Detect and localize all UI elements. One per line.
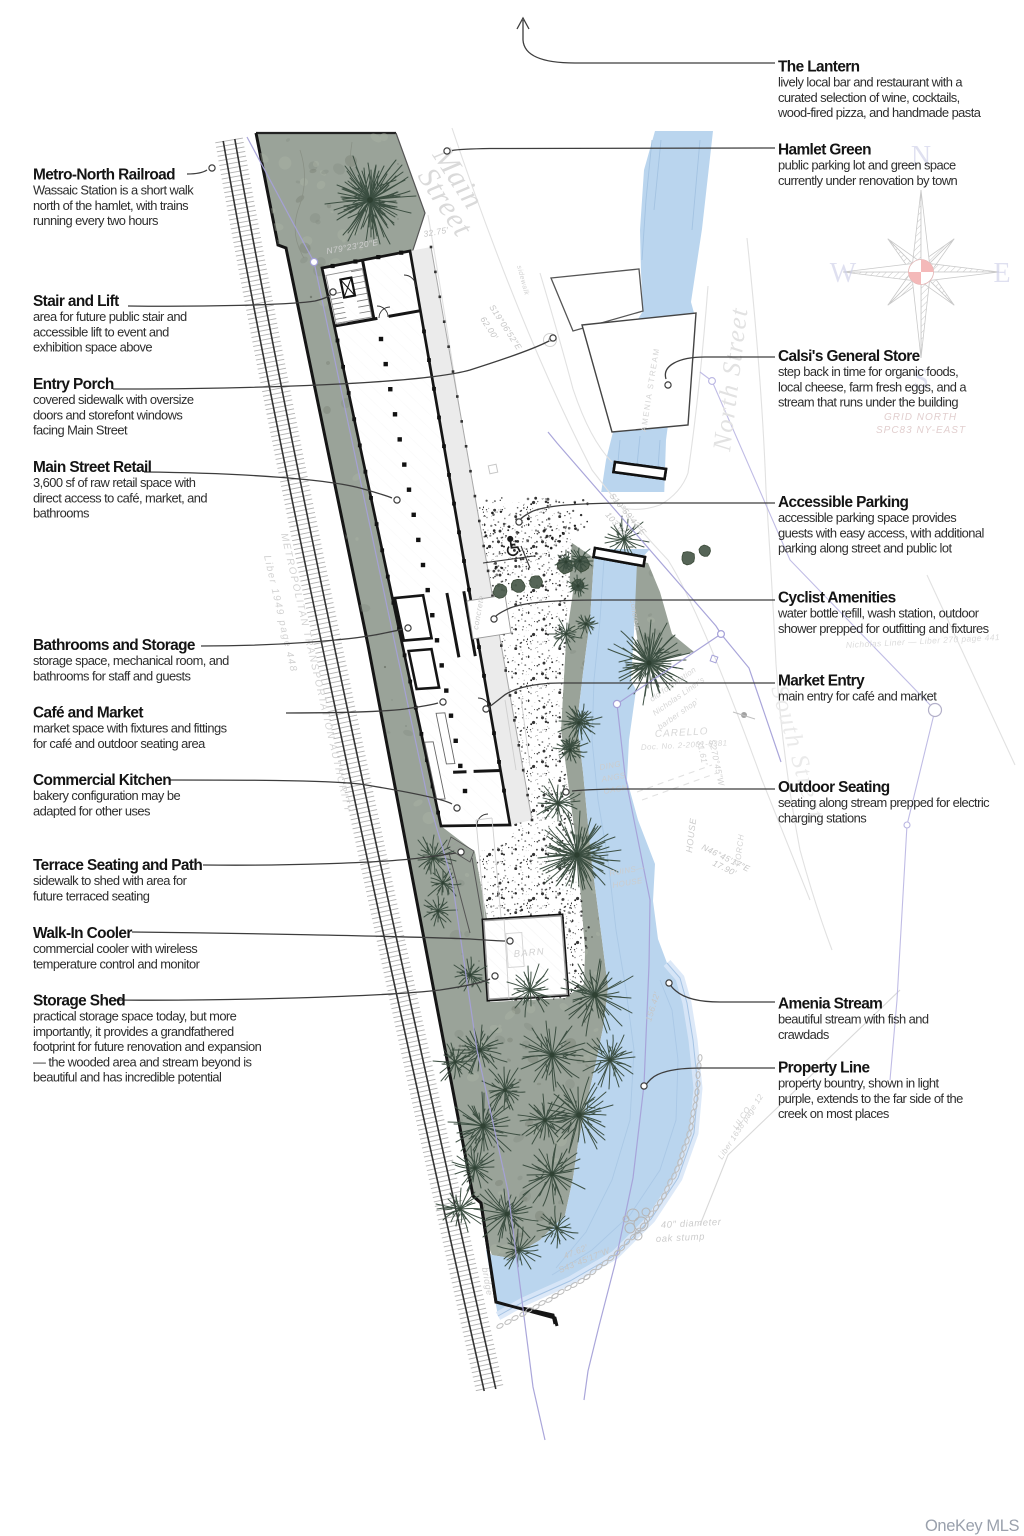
svg-text:north of the hamlet, with trai: north of the hamlet, with trains — [33, 198, 188, 213]
svg-text:Outdoor Seating: Outdoor Seating — [778, 779, 890, 796]
svg-text:covered sidewalk with oversize: covered sidewalk with oversize — [33, 392, 194, 407]
svg-text:GRID NORTH: GRID NORTH — [884, 412, 957, 423]
svg-text:Walk-In Cooler: Walk-In Cooler — [33, 925, 132, 942]
svg-text:Amenia Stream: Amenia Stream — [778, 996, 882, 1013]
svg-text:Wassaic Station is a short wal: Wassaic Station is a short walk — [33, 183, 194, 198]
svg-text:bathrooms: bathrooms — [33, 506, 89, 521]
svg-text:property bountry, shown in lig: property bountry, shown in light — [778, 1076, 940, 1091]
svg-text:Accessible Parking: Accessible Parking — [778, 494, 909, 511]
svg-text:local cheese, farm fresh eggs,: local cheese, farm fresh eggs, and a — [778, 379, 967, 394]
svg-text:curated selection of wine, coc: curated selection of wine, cocktails, — [778, 90, 960, 105]
svg-text:Commercial Kitchen: Commercial Kitchen — [33, 772, 171, 789]
svg-text:footprint for future renovatio: footprint for future renovation and expa… — [33, 1039, 262, 1054]
svg-text:practical storage space today,: practical storage space today, but more — [33, 1009, 237, 1024]
svg-text:currently under renovation by: currently under renovation by town — [778, 173, 957, 188]
svg-text:Calsi's General Store: Calsi's General Store — [778, 348, 921, 365]
svg-text:Bathrooms and Storage: Bathrooms and Storage — [33, 637, 196, 654]
svg-text:creek on most places: creek on most places — [778, 1106, 889, 1121]
svg-text:— the wooded area and stream b: — the wooded area and stream beyond is — [33, 1054, 252, 1069]
svg-text:purple, extends to the far sid: purple, extends to the far side of the — [778, 1091, 963, 1106]
svg-text:parking along street and publi: parking along street and public lot — [778, 541, 952, 556]
svg-text:bakery configuration may be: bakery configuration may be — [33, 788, 180, 803]
svg-text:public parking lot and green s: public parking lot and green space — [778, 158, 956, 173]
svg-text:W: W — [830, 258, 857, 289]
svg-text:Café and Market: Café and Market — [33, 705, 143, 722]
svg-text:Metro-North Railroad: Metro-North Railroad — [33, 167, 175, 184]
svg-text:market space with fixtures and: market space with fixtures and fittings — [33, 721, 227, 736]
svg-text:lively local bar and restauran: lively local bar and restaurant with a — [778, 75, 963, 90]
svg-text:Property Line: Property Line — [778, 1060, 870, 1077]
svg-text:area for future public stair a: area for future public stair and — [33, 309, 187, 324]
svg-text:E: E — [993, 258, 1010, 289]
svg-text:sidewalk to shed with area for: sidewalk to shed with area for — [33, 873, 188, 888]
svg-text:beautiful stream with fish and: beautiful stream with fish and — [778, 1012, 929, 1027]
svg-text:bathrooms for staff and guests: bathrooms for staff and guests — [33, 668, 190, 683]
svg-text:storage space, mechanical room: storage space, mechanical room, and — [33, 653, 229, 668]
svg-text:accessible parking space provi: accessible parking space provides — [778, 510, 956, 525]
svg-text:running every two hours: running every two hours — [33, 213, 158, 228]
svg-text:wood-fired pizza, and handmade: wood-fired pizza, and handmade pasta — [777, 105, 982, 120]
svg-text:crawdads: crawdads — [778, 1027, 829, 1042]
svg-text:shower prepped for outfitting: shower prepped for outfitting and fixtur… — [778, 621, 989, 636]
svg-text:facing Main Street: facing Main Street — [33, 423, 128, 438]
svg-text:step back in time for organic: step back in time for organic foods, — [778, 364, 958, 379]
svg-text:charging stations: charging stations — [778, 810, 866, 825]
svg-text:stream that runs under the bui: stream that runs under the building — [778, 395, 958, 410]
svg-text:doors and storefont windows: doors and storefont windows — [33, 407, 182, 422]
svg-text:for café and outdoor seating a: for café and outdoor seating area — [33, 736, 206, 751]
svg-text:Hamlet Green: Hamlet Green — [778, 142, 871, 159]
svg-text:Main Street Retail: Main Street Retail — [33, 459, 152, 476]
svg-text:3,600 sf of raw retail space w: 3,600 sf of raw retail space with — [33, 475, 196, 490]
svg-text:beautiful and has incredible p: beautiful and has incredible potential — [33, 1070, 221, 1085]
svg-text:Terrace Seating and Path: Terrace Seating and Path — [33, 857, 202, 874]
svg-text:Market Entry: Market Entry — [778, 673, 865, 690]
svg-text:guests with easy access, with: guests with easy access, with additional — [778, 525, 984, 540]
svg-text:main entry for café and market: main entry for café and market — [778, 689, 937, 704]
svg-text:temperature control and monito: temperature control and monitor — [33, 956, 201, 971]
svg-text:Storage Shed: Storage Shed — [33, 993, 125, 1010]
svg-text:water bottle refill, wash stat: water bottle refill, wash station, outdo… — [777, 606, 980, 621]
svg-text:Cyclist Amenities: Cyclist Amenities — [778, 590, 896, 607]
svg-text:seating along stream prepped f: seating along stream prepped for electri… — [778, 795, 990, 810]
svg-text:Stair and Lift: Stair and Lift — [33, 293, 119, 310]
svg-text:Entry Porch: Entry Porch — [33, 376, 114, 393]
svg-text:The Lantern: The Lantern — [778, 59, 860, 76]
svg-text:future terraced seating: future terraced seating — [33, 888, 150, 903]
svg-text:SPC83 NY-EAST: SPC83 NY-EAST — [876, 425, 966, 436]
svg-text:commercial cooler with wireles: commercial cooler with wireless — [33, 941, 197, 956]
svg-text:direct access to café, market,: direct access to café, market, and — [33, 490, 207, 505]
svg-text:adapted for other uses: adapted for other uses — [33, 803, 150, 818]
svg-text:exhibition space above: exhibition space above — [33, 340, 152, 355]
svg-text:OneKey MLS: OneKey MLS — [925, 1517, 1020, 1535]
svg-text:importantly, it provides a gra: importantly, it provides a grandfathered — [33, 1024, 234, 1039]
svg-text:accessible lift to event and: accessible lift to event and — [33, 324, 169, 339]
